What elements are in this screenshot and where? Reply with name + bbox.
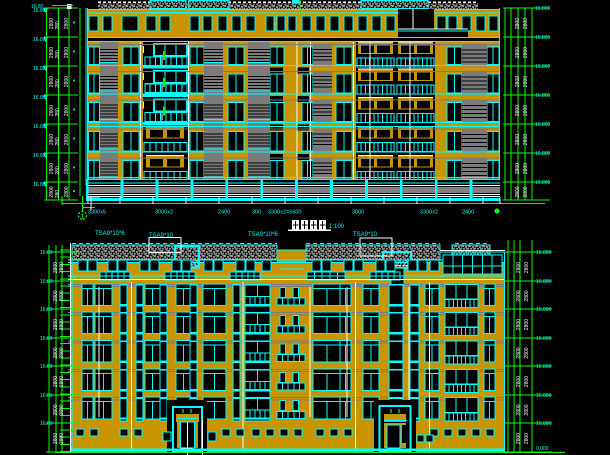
svg-text:16.80: 16.80 [40,336,53,342]
svg-text:2800: 2800 [523,76,529,87]
svg-text:280: 280 [55,108,61,117]
svg-text:2800: 2800 [59,347,65,358]
svg-text:3300x5: 3300x5 [88,210,106,216]
svg-text:2800: 2800 [524,404,530,415]
svg-text:2400: 2400 [218,210,230,216]
svg-text:2800: 2800 [516,319,522,330]
svg-text:3300x2: 3300x2 [420,210,438,216]
svg-text:16.800: 16.800 [536,250,552,256]
svg-text:2800: 2800 [64,76,70,87]
svg-text:2800: 2800 [515,186,521,197]
svg-text:2800: 2800 [524,290,530,301]
svg-text:2800: 2800 [515,163,521,174]
svg-text:16.800: 16.800 [535,122,551,128]
svg-text:2800: 2800 [515,134,521,145]
svg-text:280: 280 [55,79,61,88]
svg-text:2800: 2800 [523,134,529,145]
svg-text:280: 280 [55,21,61,30]
svg-text:16.800: 16.800 [536,336,552,342]
svg-text:280: 280 [55,50,61,59]
svg-text:3000: 3000 [352,210,364,216]
svg-text:2800: 2800 [515,47,521,58]
svg-text:16.80: 16.80 [40,364,53,370]
svg-text:2800: 2800 [59,404,65,415]
svg-text:16.800: 16.800 [536,421,552,427]
svg-text:2800: 2800 [523,18,529,29]
svg-text:16.800: 16.800 [535,151,551,157]
svg-text:280: 280 [55,137,61,146]
svg-text:2800: 2800 [59,262,65,273]
svg-text:2800: 2800 [524,433,530,444]
svg-text:2800: 2800 [523,186,529,197]
svg-text:2800: 2800 [516,404,522,415]
svg-text:16.800: 16.800 [536,307,552,313]
svg-text:2800: 2800 [516,376,522,387]
svg-text:2800: 2800 [516,433,522,444]
svg-text:2800: 2800 [515,18,521,29]
svg-text:2800: 2800 [524,262,530,273]
svg-text:16.800: 16.800 [535,64,551,70]
svg-text:16.80: 16.80 [40,307,53,313]
svg-text:16.800: 16.800 [535,35,551,41]
svg-text:2800: 2800 [515,105,521,116]
svg-text:TSA9*10*6: TSA9*10*6 [95,231,125,237]
svg-text:2800: 2800 [516,262,522,273]
svg-text:TSA9*10: TSA9*10 [353,232,378,238]
svg-text:16.80: 16.80 [40,279,53,285]
svg-text:280: 280 [55,166,61,175]
svg-text:2800: 2800 [64,163,70,174]
svg-text:2800: 2800 [516,347,522,358]
svg-text:2800: 2800 [516,290,522,301]
svg-text:16.80: 16.80 [40,421,53,427]
svg-text:16.800: 16.800 [535,180,551,186]
svg-text:16.80: 16.80 [40,250,53,256]
svg-text:16.800: 16.800 [536,364,552,370]
svg-text:2800: 2800 [523,47,529,58]
svg-text:2800: 2800 [59,376,65,387]
svg-text:2800: 2800 [64,186,70,197]
svg-text:3000x2: 3000x2 [155,210,173,216]
svg-text:2800: 2800 [64,134,70,145]
svg-text:16.800: 16.800 [536,393,552,399]
svg-text:2800: 2800 [59,290,65,301]
svg-text:16.80: 16.80 [31,4,44,10]
svg-text:2800: 2800 [59,433,65,444]
svg-text:2800: 2800 [515,76,521,87]
svg-text:2800: 2800 [523,105,529,116]
svg-text:0.000: 0.000 [536,446,549,452]
svg-text:2800: 2800 [64,47,70,58]
svg-text:16.800: 16.800 [535,6,551,12]
svg-text:2800: 2800 [524,347,530,358]
svg-text:2800: 2800 [64,18,70,29]
svg-text:280: 280 [55,190,61,199]
svg-text:2800: 2800 [59,319,65,330]
svg-text:1: 1 [81,214,85,221]
svg-text:2800: 2800 [64,105,70,116]
svg-text:1:100: 1:100 [329,224,345,230]
svg-text:16.80: 16.80 [40,393,53,399]
svg-text:2400: 2400 [462,210,474,216]
svg-text:16.800: 16.800 [536,279,552,285]
svg-text:3300x2=6600: 3300x2=6600 [268,210,302,216]
svg-text:2800: 2800 [524,376,530,387]
svg-text:300: 300 [252,210,261,216]
svg-text:16.800: 16.800 [535,93,551,99]
svg-text:2800: 2800 [523,163,529,174]
svg-text:TSA9*10*6: TSA9*10*6 [248,232,278,238]
svg-text:2800: 2800 [524,319,530,330]
